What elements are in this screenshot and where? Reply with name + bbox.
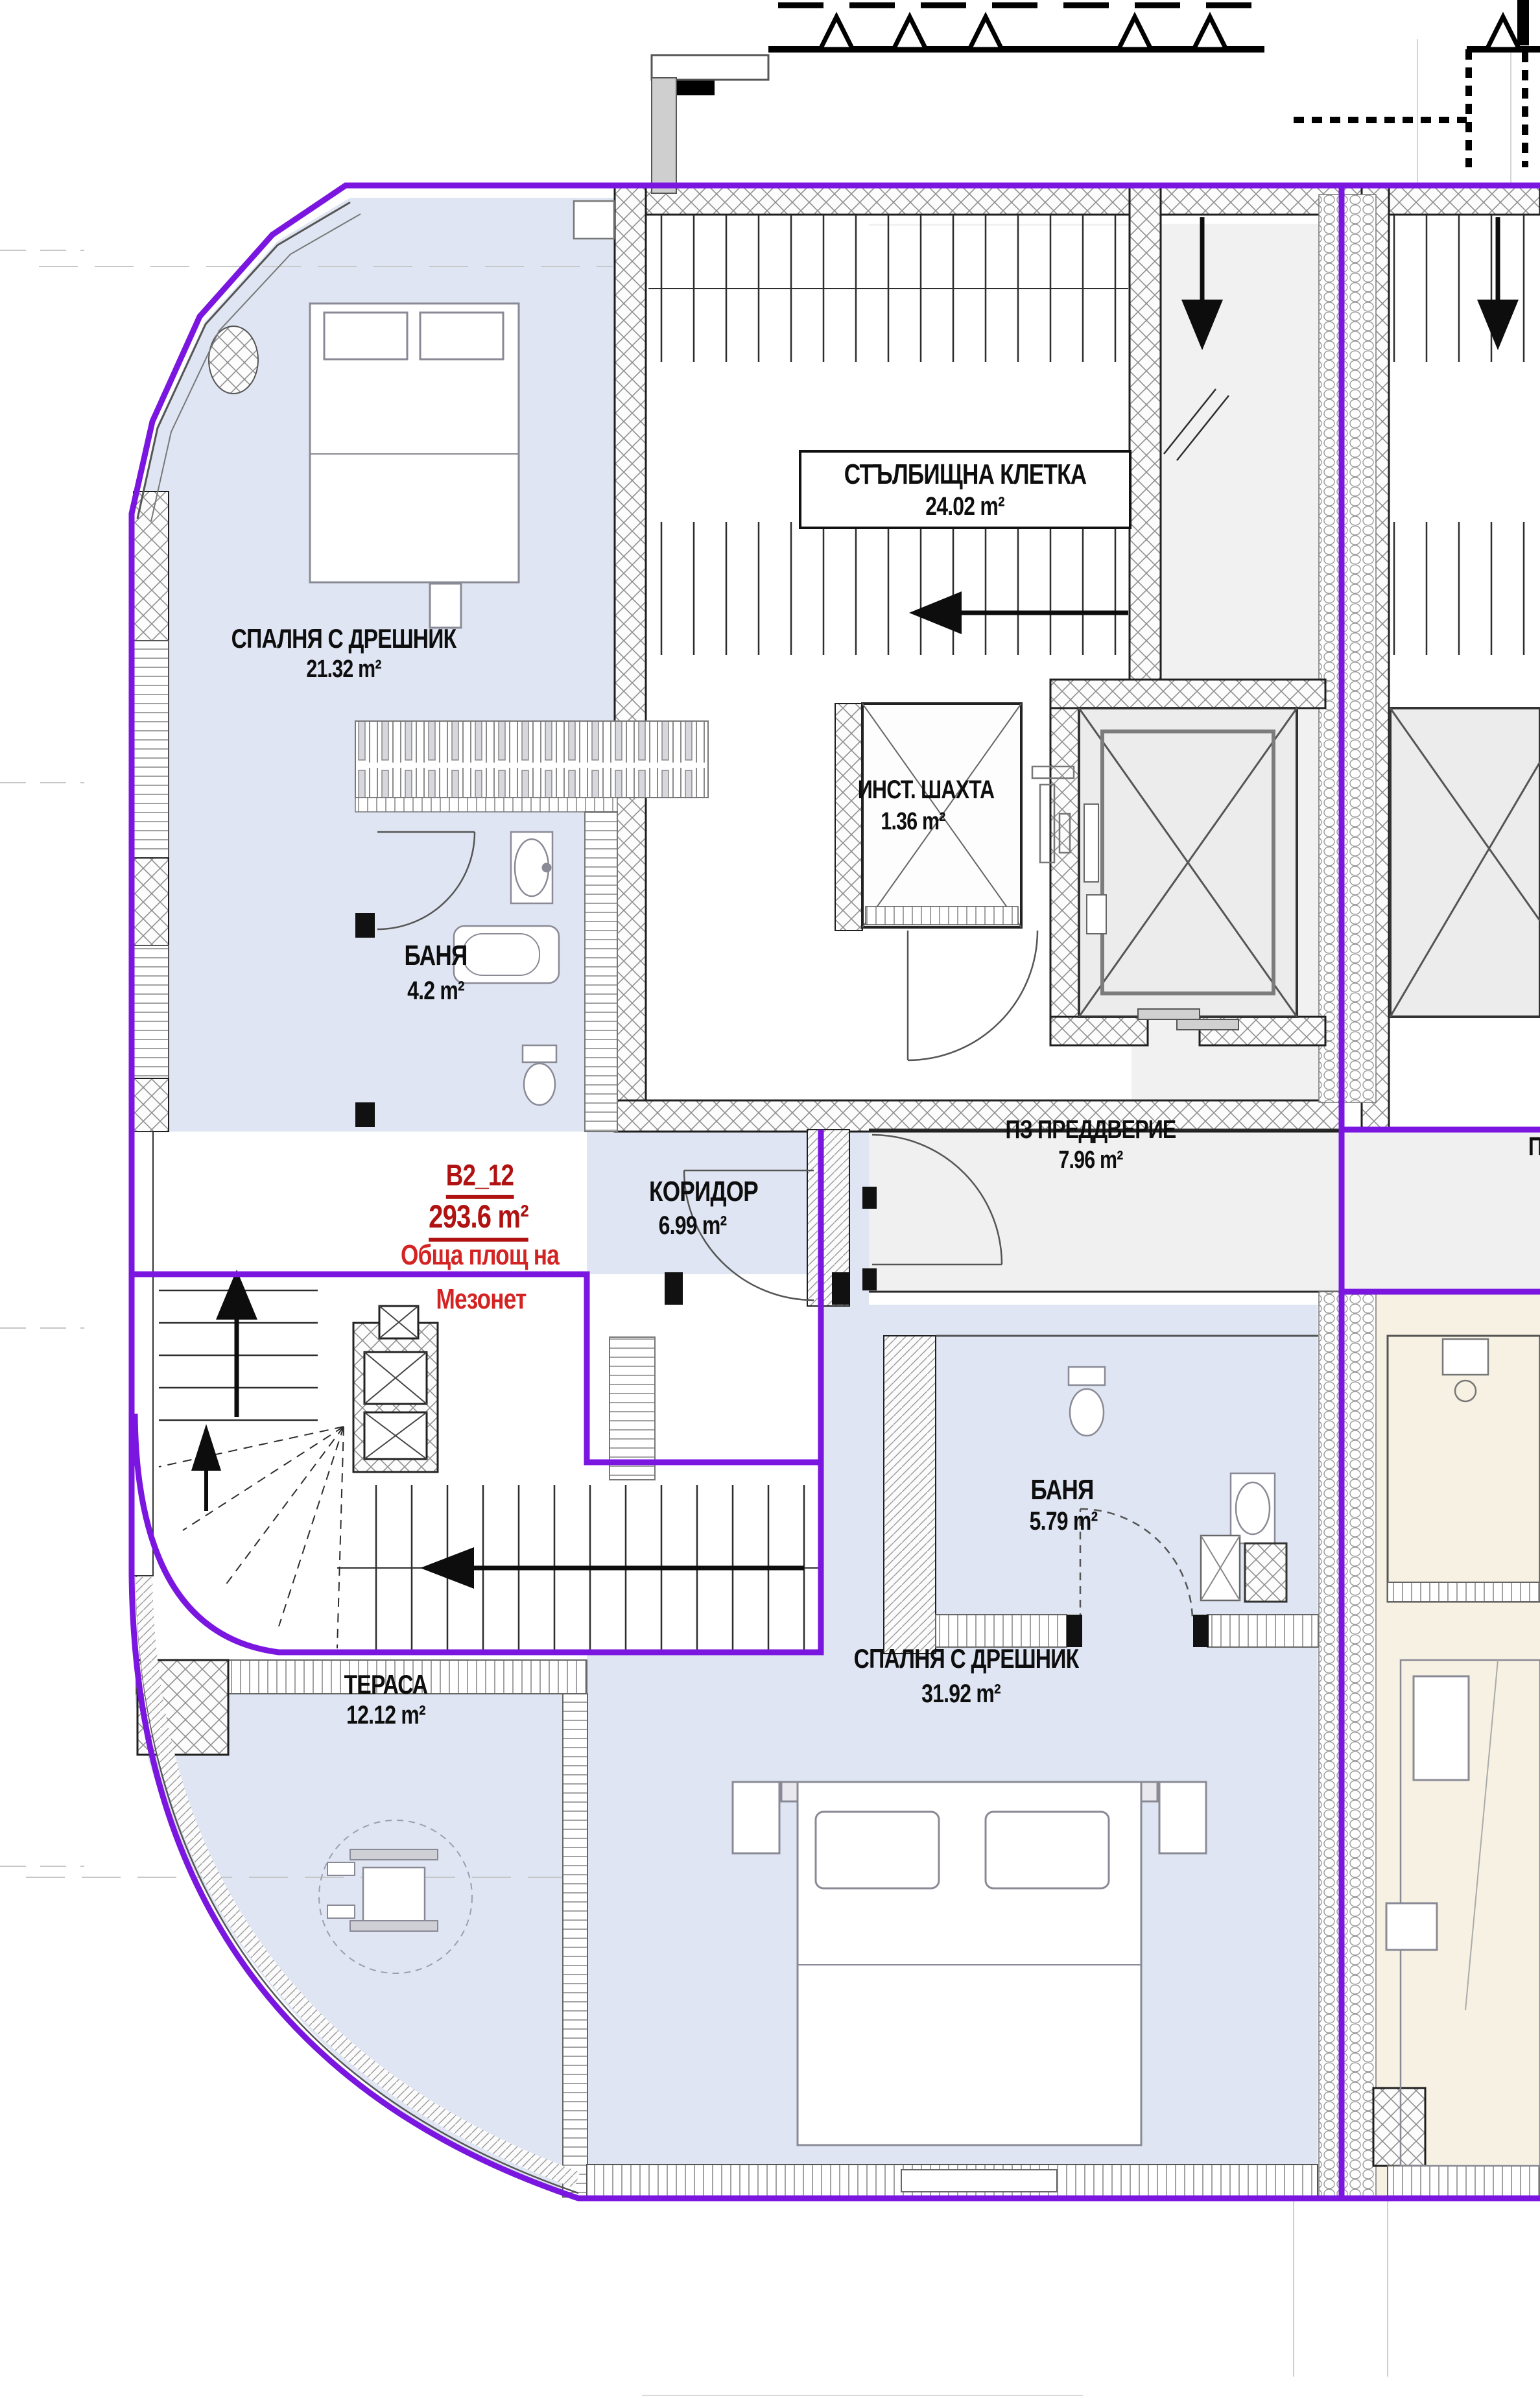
room-label-vestibule-area: 7.96 m²	[1058, 1148, 1122, 1174]
floor-plan-canvas: СПАЛНЯ С ДРЕШНИК 21.32 m² СТЪЛБИЩНА КЛЕТ…	[0, 0, 1540, 2398]
unit-note-line2: Мезонет	[436, 1285, 526, 1314]
neighbor-partial-label: П	[1528, 1133, 1540, 1160]
room-label-staircase-name: СТЪЛБИЩНА КЛЕТКА	[844, 458, 1087, 491]
room-label-staircase-box: СТЪЛБИЩНА КЛЕТКА 24.02 m²	[799, 450, 1131, 529]
room-label-terrace-name: ТЕРАСА	[344, 1670, 428, 1699]
unit-total-area-label: 293.6 m²	[429, 1200, 528, 1234]
room-label-staircase-area: 24.02 m²	[926, 492, 1005, 521]
room-label-bedroom1-name: СПАЛНЯ С ДРЕШНИК	[231, 624, 456, 653]
floor-plan-drawing	[0, 0, 1540, 2398]
room-label-bedroom2-area: 31.92 m²	[921, 1680, 1001, 1707]
top-annotations	[652, 0, 1540, 193]
room-label-terrace-area: 12.12 m²	[346, 1702, 425, 1729]
room-label-bath1-name: БАНЯ	[405, 941, 468, 971]
room-label-bath2-name: БАНЯ	[1031, 1475, 1094, 1505]
room-label-vestibule-name: ПЗ ПРЕДДВЕРИЕ	[1006, 1116, 1176, 1143]
room-label-bath2-area: 5.79 m²	[1030, 1508, 1098, 1535]
room-label-bedroom2-name: СПАЛНЯ С ДРЕШНИК	[854, 1644, 1079, 1673]
unit-note-line1: Обща площ на	[401, 1241, 559, 1270]
room-label-shaft-name: ИНСТ. ШАХТА	[858, 776, 995, 803]
room-label-corridor-area: 6.99 m²	[659, 1212, 727, 1239]
room-label-bedroom1-area: 21.32 m²	[306, 657, 381, 683]
unit-code-label: B2_12	[446, 1159, 514, 1191]
room-label-corridor-name: КОРИДОР	[649, 1177, 758, 1207]
room-label-bath1-area: 4.2 m²	[407, 977, 464, 1004]
room-label-shaft-area: 1.36 m²	[881, 809, 945, 835]
